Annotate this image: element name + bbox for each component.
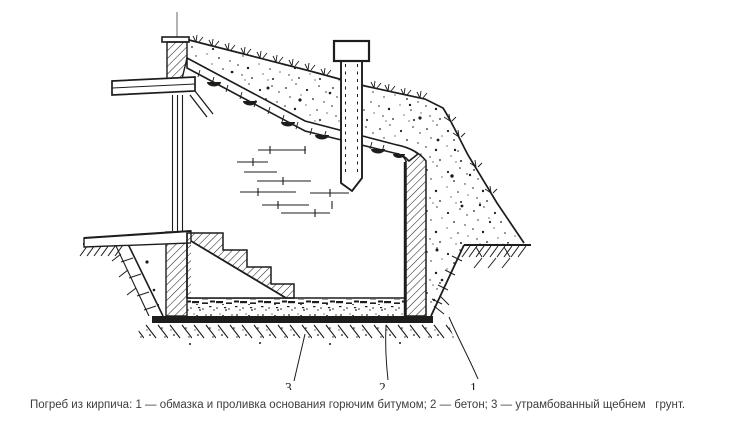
left-ground xyxy=(80,244,163,316)
vent-pipe-cap xyxy=(334,41,369,61)
entrance-canopy xyxy=(112,77,213,117)
base-slab xyxy=(152,316,433,323)
rubble-layer xyxy=(135,323,455,340)
right-wall xyxy=(395,145,426,316)
gable-wall xyxy=(162,12,189,83)
bitumen-layer xyxy=(187,299,405,304)
concrete-layer xyxy=(187,304,405,316)
callout-2: 2 xyxy=(379,380,386,390)
brickwork-symbol xyxy=(237,146,349,217)
figure-caption: Погреб из кирпича: 1 — обмазка и проливк… xyxy=(30,398,685,412)
leader-3 xyxy=(294,334,305,381)
figure-page: 3 2 1 Погреб из кирпича: 1 — обмазка и п… xyxy=(0,0,745,438)
callout-3: 3 xyxy=(285,380,292,390)
entrance-wall xyxy=(166,232,187,316)
door-frame xyxy=(173,95,183,231)
cellar-section-drawing: 3 2 1 xyxy=(0,0,745,390)
callout-1: 1 xyxy=(470,380,477,390)
stairs xyxy=(187,233,294,298)
leader-1 xyxy=(449,317,478,379)
